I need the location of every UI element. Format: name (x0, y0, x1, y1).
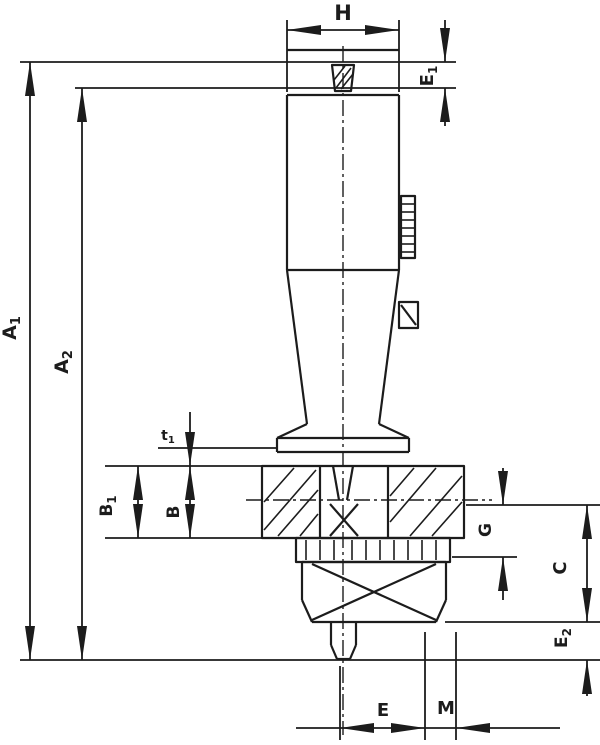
skirt-flare-left (277, 424, 307, 438)
grip-taper-right (379, 270, 399, 424)
stem-neck-right (347, 466, 353, 500)
bushing-chamfer-left (302, 600, 312, 622)
part-outline (262, 50, 464, 659)
stem-neck-left (333, 466, 339, 500)
skirt-flare-right (379, 424, 409, 438)
flange-band (262, 466, 464, 538)
side-cam-detail (401, 305, 416, 325)
arrow (287, 25, 321, 35)
dim-label-g: G (476, 523, 496, 537)
hatching (264, 66, 462, 560)
hatch-line (390, 468, 414, 496)
arrowheads (25, 25, 592, 733)
arrow (185, 466, 195, 500)
dim-label-e2: E2 (552, 628, 574, 648)
extension-lines (20, 20, 600, 740)
dimension-drawing-svg: H E1 A1 A2 t1 B1 B G C E2 E M (0, 0, 600, 745)
arrow (582, 505, 592, 539)
arrow (440, 88, 450, 122)
middle-band (296, 538, 450, 562)
pin-tip-chamfer-right (350, 645, 356, 659)
arrow (77, 88, 87, 122)
arrow (25, 62, 35, 96)
drawing-canvas: H E1 A1 A2 t1 B1 B G C E2 E M (0, 0, 600, 745)
arrow (365, 25, 399, 35)
arrow (440, 28, 450, 62)
arrow (456, 723, 490, 733)
centerlines (246, 46, 492, 735)
side-latch (401, 196, 415, 258)
bushing-chamfer-right (436, 600, 446, 622)
hatch-line (300, 514, 318, 536)
arrow (25, 626, 35, 660)
arrow (133, 466, 143, 500)
grip-taper-left (287, 270, 307, 424)
arrow (498, 557, 508, 591)
arrow (498, 471, 508, 505)
arrow (582, 660, 592, 694)
arrow (133, 504, 143, 538)
dim-label-h: H (334, 1, 352, 25)
hatch-line (278, 490, 318, 536)
dim-label-a2: A2 (51, 350, 76, 374)
arrow (582, 588, 592, 622)
arrow (340, 723, 374, 733)
arrow (391, 723, 425, 733)
dim-label-e: E (377, 700, 389, 721)
dim-label-b1: B1 (97, 495, 119, 516)
arrow (185, 432, 195, 466)
dim-label-a1: A1 (0, 316, 24, 340)
arrow (185, 504, 195, 538)
hatch-line (264, 468, 294, 502)
hatch-line (432, 502, 462, 536)
dim-label-e1: E1 (417, 66, 440, 87)
dim-label-b: B (164, 506, 184, 519)
hatch-line (410, 476, 462, 536)
dim-label-t1: t1 (161, 428, 175, 446)
pin-tip-chamfer-left (331, 645, 337, 659)
dim-label-c: C (550, 561, 571, 574)
arrow (77, 626, 87, 660)
dim-label-m: M (437, 698, 455, 719)
